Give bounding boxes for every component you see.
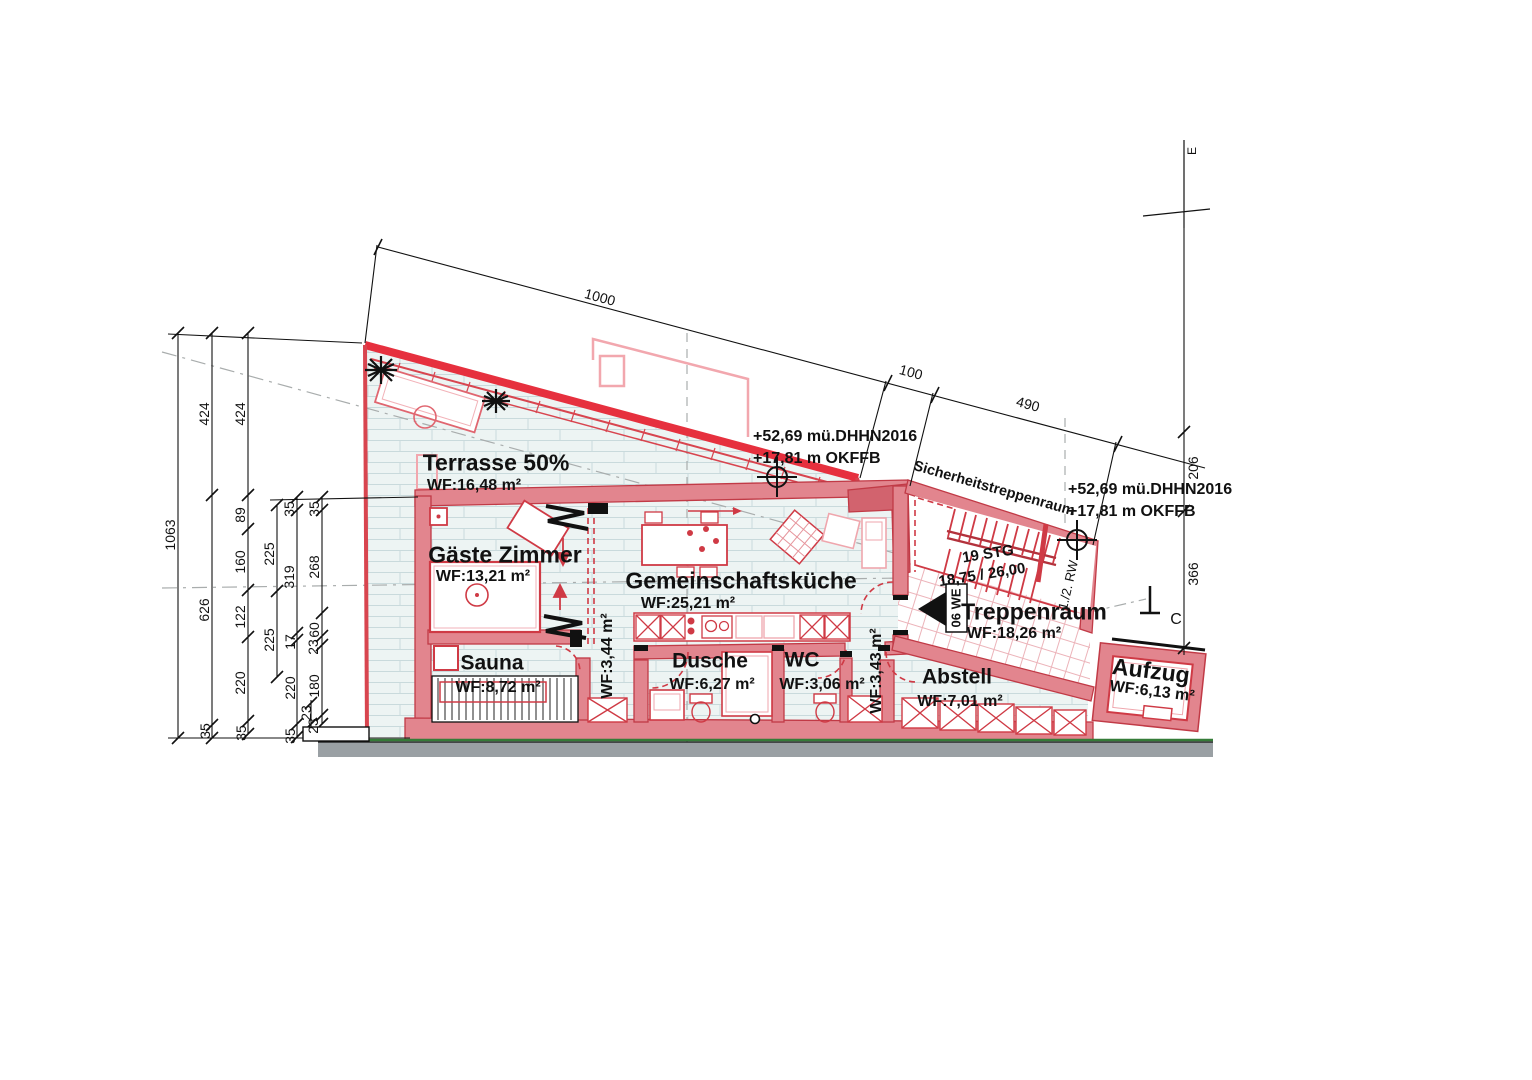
room-label-wc: WC xyxy=(785,650,820,671)
dimension-label: 23 xyxy=(299,705,313,721)
dimension-label: 23 xyxy=(306,639,320,655)
elevation-note-2b: +17,81 m OKFFB xyxy=(1068,504,1196,520)
dimension-label: 220 xyxy=(283,676,297,699)
dimension-label: 180 xyxy=(307,674,321,697)
dimension-label: 35 xyxy=(283,728,297,744)
dimension-label: 220 xyxy=(233,671,247,694)
room-label-kueche: Gemeinschaftsküche xyxy=(625,570,856,593)
dimension-label: 268 xyxy=(307,555,321,578)
dimension-label: 424 xyxy=(197,402,211,425)
room-area-flur1: WF:3,44 m² xyxy=(600,613,616,698)
dimension-label: 35 xyxy=(234,725,248,741)
axis-label: E xyxy=(1186,147,1198,155)
floor-plan-canvas: Terrasse 50% WF:16,48 m² Gäste Zimmer WF… xyxy=(0,0,1532,1080)
dimension-label: 122 xyxy=(233,605,247,628)
dimension-label: 1063 xyxy=(163,519,177,550)
room-area-flur2: WF:3,43 m² xyxy=(869,628,885,713)
room-area-terrasse: WF:16,48 m² xyxy=(427,478,521,494)
dimension-label: 17 xyxy=(283,634,297,650)
room-label-terrasse: Terrasse 50% xyxy=(423,452,570,475)
dimension-label: 35 xyxy=(307,501,321,517)
dimension-label: 366 xyxy=(1186,562,1200,585)
dimension-label: 626 xyxy=(197,598,211,621)
room-area-gaeste: WF:13,21 m² xyxy=(436,569,530,585)
dimension-label: 424 xyxy=(233,402,247,425)
elevation-note-2a: +52,69 mü.DHHN2016 xyxy=(1068,482,1232,498)
room-label-dusche: Dusche xyxy=(672,651,748,672)
elevation-note-1a: +52,69 mü.DHHN2016 xyxy=(753,429,917,445)
room-area-kueche: WF:25,21 m² xyxy=(641,596,735,612)
survey-cross xyxy=(1143,140,1210,228)
dimension-label: 35 xyxy=(282,501,296,517)
dimension-label: 35 xyxy=(198,723,212,739)
unit-marker-label: 06 WE xyxy=(950,588,963,627)
dimension-label: 319 xyxy=(282,565,296,588)
dimension-label: 225 xyxy=(262,628,276,651)
section-label: C xyxy=(1170,612,1182,628)
dimension-label: 206 xyxy=(1186,456,1200,479)
dimension-label: 225 xyxy=(262,542,276,565)
dimension-label: 160 xyxy=(233,550,247,573)
room-label-treppenraum: Treppenraum xyxy=(961,601,1107,624)
elevation-note-1b: +17,81 m OKFFB xyxy=(753,451,881,467)
dimension-label: 89 xyxy=(233,507,247,523)
room-area-dusche: WF:6,27 m² xyxy=(669,677,754,693)
room-label-abstell: Abstell xyxy=(922,667,992,688)
dimension-label: 60 xyxy=(307,622,321,638)
room-area-wc: WF:3,06 m² xyxy=(779,677,864,693)
room-area-treppenraum: WF:18,26 m² xyxy=(967,626,1061,642)
room-label-gaeste: Gäste Zimmer xyxy=(428,544,581,567)
room-area-abstell: WF:7,01 m² xyxy=(917,694,1002,710)
room-label-sauna: Sauna xyxy=(460,653,523,674)
plan-geometry xyxy=(0,0,1532,1080)
room-area-sauna: WF:8,72 m² xyxy=(455,680,540,696)
